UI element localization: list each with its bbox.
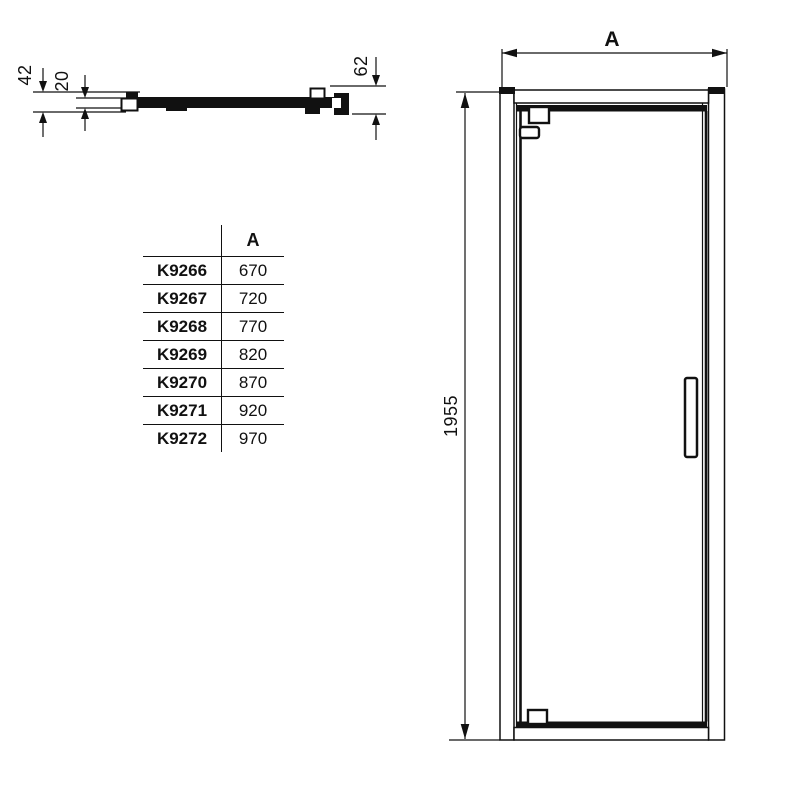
table-row: K9266 670: [143, 256, 284, 284]
arrow-up-icon: [81, 108, 89, 119]
arrow-up-icon: [39, 112, 47, 123]
arrow-up-icon: [461, 93, 470, 108]
bottom-frame-member: [514, 728, 709, 741]
width-value: 770: [222, 312, 285, 340]
section-view: 42 20 62: [15, 55, 386, 140]
width-value: 820: [222, 340, 285, 368]
width-value: 720: [222, 284, 285, 312]
table-row: K9272 970: [143, 424, 284, 452]
drawing-layer: 42 20 62 A 1955: [0, 0, 792, 811]
right-wall-profile: [709, 89, 725, 740]
dim-42-label: 42: [15, 64, 35, 85]
arrow-down-icon: [39, 81, 47, 92]
table-row: K9267 720: [143, 284, 284, 312]
arrow-down-icon: [461, 724, 470, 739]
table-row: K9271 920: [143, 396, 284, 424]
left-wall-profile: [500, 89, 514, 740]
product-code: K9267: [143, 284, 222, 312]
profile-tab: [305, 108, 320, 114]
product-code: K9272: [143, 424, 222, 452]
top-hinge-cover: [520, 127, 539, 138]
dim-20-label: 20: [52, 70, 72, 91]
arrow-right-icon: [712, 49, 727, 58]
seal-detail: [166, 106, 187, 111]
table-row: K9269 820: [143, 340, 284, 368]
width-value: 870: [222, 368, 285, 396]
size-table: A K9266 670 K9267 720 K9268 770 K9269 82…: [143, 225, 284, 452]
width-value: 670: [222, 256, 285, 284]
bottom-pivot-hinge: [528, 710, 547, 724]
product-code: K9271: [143, 396, 222, 424]
dim-width-label: A: [604, 28, 619, 51]
top-pivot-hinge: [529, 107, 549, 123]
top-left-cap: [499, 87, 515, 94]
wall-bracket-section: [122, 99, 138, 111]
top-right-cap: [708, 87, 725, 94]
table-header-row: A: [143, 225, 284, 256]
product-code: K9270: [143, 368, 222, 396]
arrow-down-icon: [372, 75, 380, 86]
product-code: K9266: [143, 256, 222, 284]
elevation-view: A 1955: [441, 28, 727, 740]
glass-panel-section: [136, 97, 335, 108]
top-frame-member: [514, 90, 709, 103]
table-row: K9270 870: [143, 368, 284, 396]
width-value: 920: [222, 396, 285, 424]
dim-62-label: 62: [351, 55, 371, 76]
arrow-up-icon: [372, 114, 380, 125]
header-code-cell: [143, 225, 222, 256]
product-code: K9268: [143, 312, 222, 340]
table-row: K9268 770: [143, 312, 284, 340]
profile-slot: [332, 98, 341, 108]
arrow-left-icon: [502, 49, 517, 58]
width-value: 970: [222, 424, 285, 452]
dim-height-label: 1955: [441, 395, 461, 437]
hinge-block-section: [311, 89, 325, 99]
technical-drawing-page: 42 20 62 A 1955: [0, 0, 792, 811]
header-a-cell: A: [222, 225, 285, 256]
product-code: K9269: [143, 340, 222, 368]
door-handle: [685, 378, 697, 457]
